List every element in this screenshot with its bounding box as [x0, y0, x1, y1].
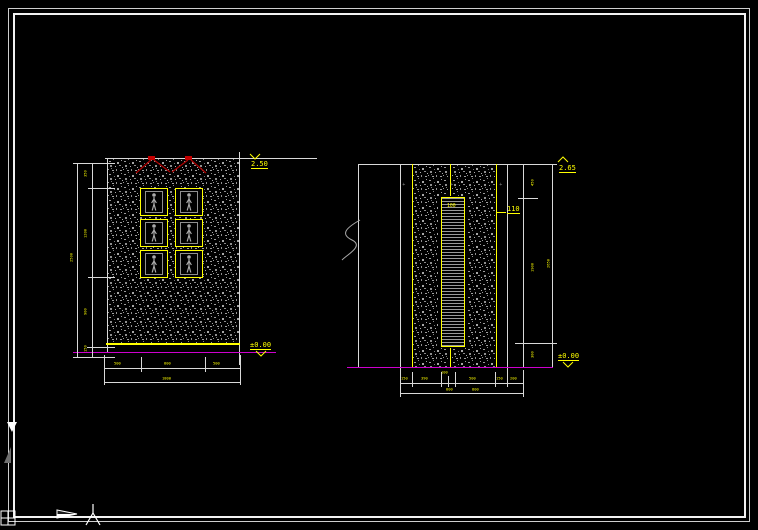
- dim-line: [552, 164, 553, 367]
- panel-edge-line: [412, 164, 413, 367]
- dim-line: [400, 393, 524, 394]
- panel-edge-line: [496, 164, 497, 367]
- dimension-text: 150: [84, 345, 88, 352]
- break-line-icon: [338, 218, 374, 264]
- person-icon: [181, 223, 197, 243]
- ucs-triangle-icon: [2, 446, 13, 464]
- ucs-down-arrow-icon: [6, 421, 18, 433]
- dim-line: [104, 382, 241, 383]
- floor-line: [347, 367, 553, 368]
- trim-label: 110: [507, 205, 520, 214]
- dim-tick: [507, 372, 508, 387]
- ladder-label: 100: [447, 204, 456, 209]
- dimension-text: 800: [446, 388, 453, 392]
- dimension-text: 100: [441, 371, 448, 375]
- level-text-bottom: ±0.00: [558, 352, 579, 361]
- dim-line: [400, 383, 524, 384]
- level-flag-icon: [557, 156, 569, 163]
- dimension-text: 1800: [162, 377, 171, 381]
- picture-frame: [175, 250, 203, 278]
- dim-line: [104, 368, 241, 369]
- dim-tick: [455, 372, 456, 387]
- person-icon: [146, 192, 162, 212]
- ladder-element: 100: [438, 196, 468, 348]
- dim-tick: [104, 355, 105, 372]
- dim-line: [77, 163, 78, 358]
- dim-line: [523, 164, 524, 367]
- baseboard-line: [106, 343, 240, 345]
- section-line: [507, 164, 508, 386]
- level-flag-icon: [562, 361, 574, 369]
- person-icon: [181, 192, 197, 212]
- level-flag-icon: [249, 153, 261, 160]
- person-icon: [146, 223, 162, 243]
- picture-mat: [145, 191, 163, 213]
- drawing-canvas[interactable]: 2.50 ±0.00 350 1200 900 150 2500 500 800…: [0, 0, 758, 530]
- picture-mat: [145, 253, 163, 275]
- dimension-text: 300: [531, 351, 535, 358]
- leader-line: [497, 212, 506, 213]
- dim-tick: [515, 164, 557, 165]
- picture-mat: [180, 253, 198, 275]
- dimension-text: 350: [84, 170, 88, 177]
- picture-mat: [145, 222, 163, 244]
- center-line: [450, 347, 451, 368]
- dim-tick: [518, 198, 538, 199]
- dimension-text: 900: [84, 308, 88, 315]
- dim-line: [92, 163, 93, 358]
- plus-marker-icon: +: [499, 183, 502, 188]
- level-flag-icon: [255, 350, 267, 358]
- dimension-text: 150: [401, 377, 408, 381]
- picture-frame: [140, 250, 168, 278]
- dimension-text: 200: [510, 377, 517, 381]
- dim-tick: [240, 372, 241, 385]
- wall-right-edge: [239, 152, 240, 365]
- dim-tick: [523, 385, 524, 397]
- ucs-x-arrow-icon: [56, 508, 80, 520]
- picture-mat: [180, 191, 198, 213]
- dimension-text: 500: [213, 362, 220, 366]
- dimension-text: 800: [164, 362, 171, 366]
- level-text-bottom: ±0.00: [250, 341, 271, 350]
- dimension-text: 2500: [70, 253, 74, 262]
- plus-marker-icon: +: [402, 183, 405, 188]
- dim-tick: [88, 277, 115, 278]
- person-icon: [181, 254, 197, 274]
- wall-hatch: [108, 159, 239, 343]
- spotlight-beams-icon: [128, 158, 212, 178]
- level-text-top: 2.50: [251, 160, 268, 169]
- picture-frame: [175, 188, 203, 216]
- floor-line: [73, 352, 276, 353]
- dimension-text: 150: [496, 377, 503, 381]
- dimension-text: 2650: [547, 259, 551, 268]
- dim-tick: [141, 357, 142, 372]
- dimension-text: 450: [531, 179, 535, 186]
- dim-tick: [412, 372, 413, 387]
- dim-tick: [87, 347, 115, 348]
- dimension-text: 800: [472, 388, 479, 392]
- dimension-text: 1200: [84, 229, 88, 238]
- ucs-axis-icon: [84, 503, 102, 527]
- dim-tick: [515, 343, 557, 344]
- dim-tick: [205, 357, 206, 372]
- dim-tick: [73, 163, 115, 164]
- ucs-origin-grid-icon: [0, 510, 17, 527]
- dim-tick: [104, 372, 105, 385]
- dim-tick: [73, 357, 115, 358]
- ladder-rungs: [441, 197, 465, 347]
- dim-tick: [400, 385, 401, 397]
- picture-frame: [140, 188, 168, 216]
- dimension-text: 500: [469, 377, 476, 381]
- dimension-text: 390: [421, 377, 428, 381]
- dim-tick: [240, 355, 241, 372]
- level-text-top: 2.65: [559, 164, 576, 173]
- section-line: [400, 164, 401, 386]
- picture-frame: [140, 219, 168, 247]
- dim-tick: [88, 188, 115, 189]
- dim-tick: [448, 376, 449, 387]
- plus-marker-icon: +: [450, 183, 453, 188]
- person-icon: [146, 254, 162, 274]
- dimension-text: 500: [114, 362, 121, 366]
- dimension-text: 1900: [531, 263, 535, 272]
- picture-mat: [180, 222, 198, 244]
- section-left-line: [358, 164, 359, 367]
- picture-frame: [175, 219, 203, 247]
